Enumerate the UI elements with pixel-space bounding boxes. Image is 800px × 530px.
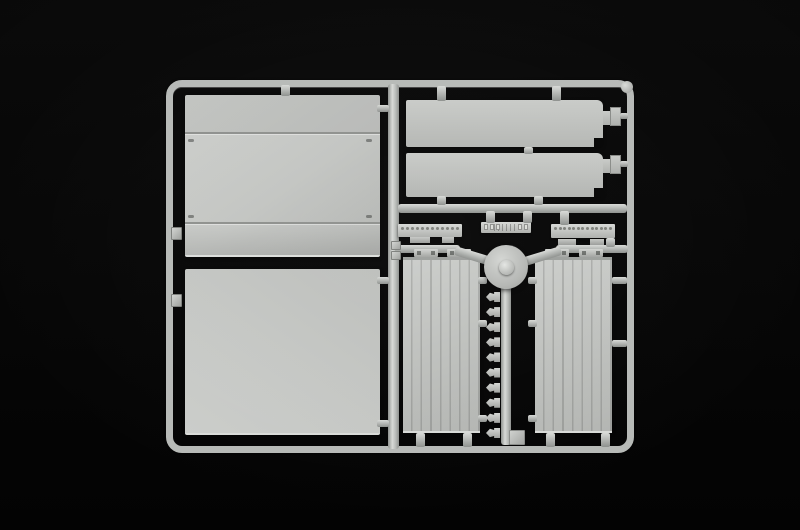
rivet-dot <box>604 227 607 230</box>
left-upper-panel <box>185 95 380 257</box>
rivet-row <box>554 227 612 230</box>
gate-stub <box>523 211 532 223</box>
detail-stud <box>484 224 488 230</box>
strip-flange <box>442 237 454 243</box>
gate-stub <box>552 86 561 101</box>
rivet-dot <box>600 227 603 230</box>
gate-stub <box>463 433 472 447</box>
corner-gate-nub <box>621 81 633 93</box>
panel-corner-notch <box>594 188 603 197</box>
gate-stub <box>560 211 569 225</box>
gate-stub <box>377 105 389 112</box>
latch-mark <box>366 139 372 142</box>
latch-mark <box>188 215 194 218</box>
gate-stub <box>486 211 495 223</box>
gate-stub <box>612 340 627 347</box>
rivet-dot <box>456 227 459 230</box>
stud-cluster <box>518 224 528 230</box>
rivet-dot <box>554 227 557 230</box>
left-rivet-strip <box>398 224 462 237</box>
hinge-bar-part <box>579 249 603 257</box>
rivet-dot <box>577 227 580 230</box>
hub-center-boss <box>499 260 514 275</box>
rivet-dot <box>441 227 444 230</box>
rivet-dot <box>436 227 439 230</box>
gate-stub <box>546 433 555 447</box>
rivet-dot <box>451 227 454 230</box>
rivet-dot <box>559 227 562 230</box>
clip-part <box>486 352 500 362</box>
gate-stub <box>416 433 425 447</box>
clip-part <box>486 398 500 408</box>
gate-stub <box>620 161 628 167</box>
gate-stub <box>528 320 537 327</box>
rail-clip-part <box>171 227 182 240</box>
strip-flange <box>558 239 576 245</box>
rivet-dot <box>446 227 449 230</box>
rivet-dot <box>581 227 584 230</box>
panel-corner-notch <box>594 138 603 147</box>
top-right-panel-1 <box>406 100 603 147</box>
right-rivet-strip <box>551 224 615 238</box>
gate-stub <box>528 415 537 422</box>
left-door-panel <box>403 257 480 433</box>
clip-part <box>486 322 500 332</box>
right-door-panel <box>535 257 612 433</box>
rivet-dot <box>401 227 404 230</box>
gate-stub <box>534 196 543 205</box>
rivet-dot <box>572 227 575 230</box>
latch-mark <box>366 215 372 218</box>
top-right-panel-2 <box>406 153 603 197</box>
panel-shading <box>185 224 380 255</box>
rivet-dot <box>406 227 409 230</box>
gate-stub <box>601 433 610 447</box>
strip-flange <box>410 237 430 243</box>
bottom-square-part <box>509 430 525 445</box>
gate-stub <box>612 277 627 284</box>
rivet-dot <box>609 227 612 230</box>
clip-part <box>486 428 500 438</box>
gate-stub <box>377 420 389 427</box>
center-divider-runner <box>388 84 399 449</box>
rivet-dot <box>411 227 414 230</box>
rivet-dot <box>586 227 589 230</box>
gate-stub <box>437 86 446 101</box>
clip-part <box>486 368 500 378</box>
stud-cluster <box>484 224 500 230</box>
divider-clip-part <box>391 251 401 260</box>
gate-stub <box>281 85 290 96</box>
center-clip-runner <box>501 283 511 445</box>
panel-seam-line <box>185 132 380 134</box>
rivet-dot <box>591 227 594 230</box>
gate-stub <box>524 147 533 154</box>
gate-stub <box>620 113 628 119</box>
detail-stud <box>490 224 494 230</box>
clip-column <box>486 292 501 438</box>
rivet-dot <box>563 227 566 230</box>
gate-stub <box>437 196 446 205</box>
gate-stub <box>606 238 615 247</box>
hinge-bar-part <box>414 249 438 257</box>
rivet-dot <box>431 227 434 230</box>
clip-part <box>486 383 500 393</box>
rivet-dot <box>595 227 598 230</box>
center-ribbed-strip <box>481 222 531 233</box>
gate-stub <box>528 277 537 284</box>
detail-stud <box>524 224 528 230</box>
clip-part <box>486 307 500 317</box>
panel-seam-line <box>185 222 380 224</box>
clip-part <box>486 337 500 347</box>
right-bay-cross-runner <box>398 204 627 213</box>
clip-part <box>486 413 500 423</box>
strip-flange <box>590 239 604 245</box>
sprue-photo <box>0 0 800 530</box>
rivet-dot <box>416 227 419 230</box>
gate-stub <box>377 277 389 284</box>
clip-part <box>486 292 500 302</box>
detail-stud <box>496 224 500 230</box>
left-lower-panel <box>185 269 380 435</box>
rivet-dot <box>421 227 424 230</box>
gate-stub <box>478 277 487 284</box>
detail-stud <box>518 224 522 230</box>
latch-mark <box>188 139 194 142</box>
rail-clip-part <box>171 294 182 307</box>
divider-clip-part <box>391 241 401 250</box>
rivet-row <box>401 227 459 230</box>
panel-shading <box>185 95 380 132</box>
rivet-dot <box>426 227 429 230</box>
rivet-dot <box>568 227 571 230</box>
